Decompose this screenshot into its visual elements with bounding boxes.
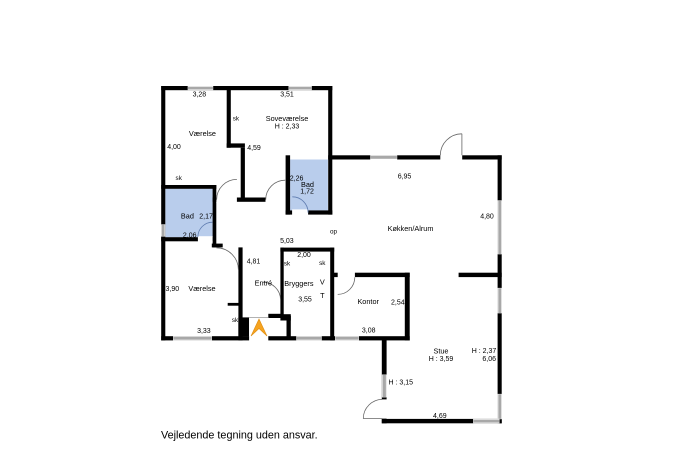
svg-text:3,28: 3,28 (193, 92, 207, 99)
svg-text:sk: sk (319, 260, 326, 267)
svg-text:H : 3,15: H : 3,15 (389, 379, 414, 386)
svg-text:Entré: Entré (255, 279, 272, 288)
svg-text:3,51: 3,51 (280, 92, 294, 99)
svg-text:H : 2,33: H : 2,33 (275, 124, 300, 131)
svg-text:T: T (320, 291, 325, 300)
svg-text:2,00: 2,00 (297, 252, 311, 259)
svg-text:Værelse: Værelse (188, 284, 215, 293)
svg-text:Soveværelse: Soveværelse (266, 114, 309, 123)
svg-text:Bad: Bad (181, 212, 194, 221)
svg-text:Vejledende tegning uden ansvar: Vejledende tegning uden ansvar. (161, 430, 318, 442)
svg-text:4,00: 4,00 (167, 144, 181, 151)
svg-text:Værelse: Værelse (189, 129, 216, 138)
svg-text:2,06: 2,06 (183, 232, 197, 239)
svg-text:4,80: 4,80 (480, 213, 494, 220)
svg-text:6,95: 6,95 (398, 174, 412, 181)
svg-text:3,08: 3,08 (362, 328, 376, 335)
svg-text:H : 3,59: H : 3,59 (429, 356, 454, 363)
svg-text:op: op (330, 229, 338, 236)
svg-text:sk: sk (176, 175, 183, 182)
svg-text:V: V (320, 278, 325, 287)
svg-text:3,90: 3,90 (165, 286, 179, 293)
svg-text:sk: sk (233, 115, 240, 122)
svg-text:1,72: 1,72 (300, 189, 314, 196)
svg-text:sk: sk (284, 260, 291, 267)
svg-text:4,81: 4,81 (247, 259, 261, 266)
svg-text:2,54: 2,54 (391, 300, 405, 307)
svg-text:sk: sk (232, 317, 239, 324)
svg-text:4,69: 4,69 (433, 413, 447, 420)
svg-text:4,59: 4,59 (247, 145, 261, 152)
svg-text:3,55: 3,55 (298, 297, 312, 304)
svg-text:5,03: 5,03 (280, 238, 294, 245)
svg-text:Bryggers: Bryggers (284, 279, 314, 288)
svg-text:Stue: Stue (433, 347, 448, 356)
svg-text:3,33: 3,33 (197, 328, 211, 335)
svg-text:2,17: 2,17 (199, 214, 213, 221)
svg-text:6,06: 6,06 (482, 356, 496, 363)
svg-text:Køkken/Alrum: Køkken/Alrum (388, 224, 434, 233)
svg-text:H : 2,37: H : 2,37 (472, 348, 497, 355)
svg-text:Kontor: Kontor (357, 297, 379, 306)
